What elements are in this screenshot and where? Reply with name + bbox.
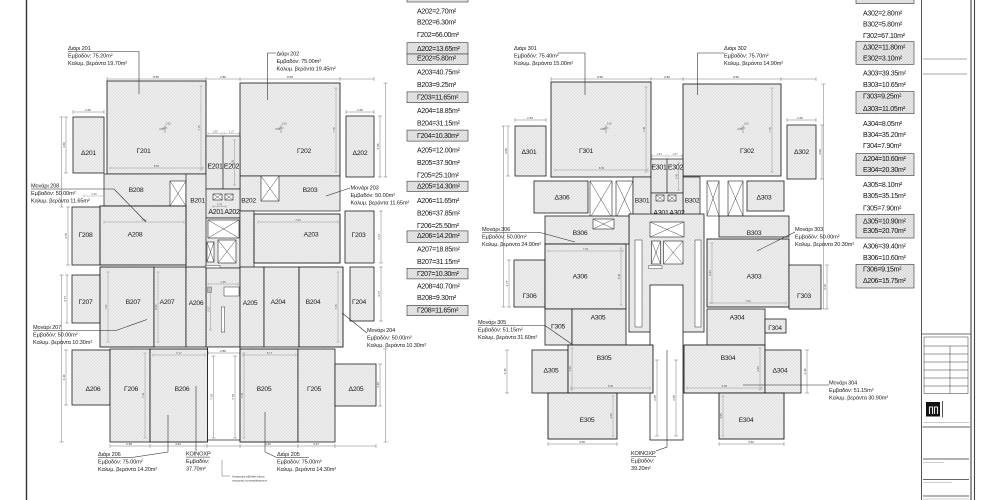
svg-text:2.60: 2.60 bbox=[85, 108, 91, 112]
svg-text:3.45: 3.45 bbox=[653, 395, 657, 401]
svg-text:Γ206: Γ206 bbox=[124, 386, 139, 393]
svg-text:B204=31.15m²: B204=31.15m² bbox=[417, 120, 460, 127]
svg-text:Μονάρι 208: Μονάρι 208 bbox=[31, 183, 59, 190]
svg-text:Δ206=15.75m²: Δ206=15.75m² bbox=[863, 278, 906, 285]
svg-text:B206=37.85m²: B206=37.85m² bbox=[417, 211, 460, 218]
svg-text:A205: A205 bbox=[243, 300, 258, 307]
svg-text:1.55: 1.55 bbox=[212, 130, 218, 134]
svg-text:E302: E302 bbox=[668, 165, 684, 172]
svg-text:4.55: 4.55 bbox=[231, 159, 235, 165]
svg-text:7.37: 7.37 bbox=[104, 304, 108, 310]
svg-text:Γ304: Γ304 bbox=[768, 325, 782, 332]
svg-text:7.02: 7.02 bbox=[583, 247, 589, 251]
svg-text:6.42: 6.42 bbox=[154, 304, 158, 310]
svg-text:Γ202: Γ202 bbox=[297, 148, 312, 155]
svg-text:Γ304=7.90m²: Γ304=7.90m² bbox=[863, 143, 902, 150]
svg-text:Γ303: Γ303 bbox=[797, 293, 812, 300]
svg-text:A201: A201 bbox=[208, 209, 224, 216]
svg-text:0.15: 0.15 bbox=[607, 124, 612, 126]
svg-text:B202=6.30m²: B202=6.30m² bbox=[417, 20, 457, 27]
svg-text:2.60: 2.60 bbox=[527, 116, 533, 120]
svg-text:Γ206=25.50m²: Γ206=25.50m² bbox=[417, 223, 460, 230]
svg-text:A202=2.70m²: A202=2.70m² bbox=[417, 9, 457, 16]
svg-text:Καλυμ. βεράντα 31.60m²: Καλυμ. βεράντα 31.60m² bbox=[478, 334, 537, 341]
svg-text:Εμβαδόν: 50.00m²: Εμβαδόν: 50.00m² bbox=[33, 331, 78, 338]
svg-text:Δ206=14.20m²: Δ206=14.20m² bbox=[417, 233, 460, 240]
svg-text:Εμβαδόν:: Εμβαδόν: bbox=[631, 457, 655, 464]
svg-text:Γ301: Γ301 bbox=[579, 148, 594, 155]
svg-text:B304=35.20m²: B304=35.20m² bbox=[863, 132, 906, 139]
svg-text:Καλυμ. βεράντα 19.70m²: Καλυμ. βεράντα 19.70m² bbox=[68, 60, 127, 67]
svg-text:3.40: 3.40 bbox=[803, 368, 807, 374]
svg-text:2.40: 2.40 bbox=[91, 192, 97, 196]
svg-text:A305: A305 bbox=[591, 315, 606, 322]
svg-text:B301: B301 bbox=[635, 198, 650, 205]
svg-text:Δ303: Δ303 bbox=[757, 195, 772, 202]
svg-text:7.33: 7.33 bbox=[141, 392, 145, 398]
svg-text:ΚΟΙΝΟΧΡ: ΚΟΙΝΟΧΡ bbox=[631, 451, 656, 457]
svg-text:B201: B201 bbox=[190, 198, 205, 205]
svg-text:3.60: 3.60 bbox=[719, 413, 723, 419]
svg-text:Μονάρι 207: Μονάρι 207 bbox=[33, 324, 61, 331]
svg-text:7.25: 7.25 bbox=[334, 304, 338, 310]
svg-text:6.60: 6.60 bbox=[722, 384, 728, 388]
svg-text:Εμβαδόν: 75.00m²: Εμβαδόν: 75.00m² bbox=[98, 458, 143, 465]
svg-text:3.00: 3.00 bbox=[818, 149, 822, 155]
svg-text:Γ204: Γ204 bbox=[352, 299, 367, 306]
svg-text:ΚΟΙΝΟΧΡ: ΚΟΙΝΟΧΡ bbox=[186, 452, 211, 458]
svg-text:3.40: 3.40 bbox=[503, 368, 507, 374]
svg-text:Γ305: Γ305 bbox=[551, 324, 566, 331]
svg-text:A302=2.80m²: A302=2.80m² bbox=[863, 11, 903, 18]
svg-text:Δ201: Δ201 bbox=[81, 150, 96, 157]
svg-text:Διάρι 205: Διάρι 205 bbox=[277, 451, 300, 458]
svg-text:B205: B205 bbox=[257, 386, 272, 393]
svg-text:3.45: 3.45 bbox=[568, 366, 572, 372]
svg-text:A202: A202 bbox=[224, 209, 240, 216]
svg-text:Δ206: Δ206 bbox=[86, 386, 101, 393]
svg-text:Γ203: Γ203 bbox=[351, 232, 366, 239]
svg-text:4.60: 4.60 bbox=[376, 143, 380, 149]
svg-text:E304=20.30m²: E304=20.30m² bbox=[863, 167, 906, 174]
svg-text:4.75: 4.75 bbox=[64, 233, 68, 239]
svg-text:2.60: 2.60 bbox=[357, 108, 363, 112]
svg-text:2.80: 2.80 bbox=[220, 75, 226, 79]
svg-text:Μονάρι 203: Μονάρι 203 bbox=[351, 185, 379, 192]
svg-text:Μονάρι 304: Μονάρι 304 bbox=[829, 380, 857, 387]
svg-text:B207=31.15m²: B207=31.15m² bbox=[417, 259, 460, 266]
svg-text:Διάρι 206: Διάρι 206 bbox=[98, 451, 121, 458]
svg-text:7.70: 7.70 bbox=[240, 392, 244, 398]
svg-text:Μονάρι 204: Μονάρι 204 bbox=[367, 327, 395, 334]
svg-text:Γ203=11.65m²: Γ203=11.65m² bbox=[417, 95, 459, 102]
svg-text:Εμβαδόν: 75.40m²: Εμβαδόν: 75.40m² bbox=[514, 52, 559, 59]
svg-text:Γ202=66.00m²: Γ202=66.00m² bbox=[417, 32, 460, 39]
svg-text:Δ305=10.90m²: Δ305=10.90m² bbox=[863, 219, 906, 226]
svg-text:B203: B203 bbox=[303, 187, 318, 194]
svg-text:Εμβαδόν: 75.20m²: Εμβαδόν: 75.20m² bbox=[68, 52, 113, 59]
svg-text:4.40: 4.40 bbox=[748, 440, 754, 444]
svg-text:Δ306: Δ306 bbox=[555, 195, 570, 202]
svg-text:απομονης προσκαθαιρεσων: απομονης προσκαθαιρεσων bbox=[232, 479, 268, 483]
svg-text:Καλυμ. βεράντα 10.30m²: Καλυμ. βεράντα 10.30m² bbox=[33, 339, 92, 346]
svg-text:Δ305: Δ305 bbox=[544, 368, 559, 375]
svg-text:Γ207: Γ207 bbox=[78, 299, 93, 306]
svg-text:0.60: 0.60 bbox=[738, 129, 743, 131]
svg-text:2.60: 2.60 bbox=[797, 116, 803, 120]
svg-text:A306: A306 bbox=[573, 274, 588, 281]
svg-text:Γ306=9.15m²: Γ306=9.15m² bbox=[863, 267, 902, 274]
svg-text:0.75: 0.75 bbox=[217, 203, 223, 207]
svg-text:Εμβαδόν: 50.00m²: Εμβαδόν: 50.00m² bbox=[31, 190, 76, 197]
svg-text:A208=40.70m²: A208=40.70m² bbox=[417, 284, 460, 291]
svg-text:A305=8.10m²: A305=8.10m² bbox=[863, 182, 903, 189]
svg-text:B207: B207 bbox=[126, 299, 141, 306]
svg-text:5.27: 5.27 bbox=[207, 306, 211, 312]
svg-text:4.40: 4.40 bbox=[376, 382, 380, 388]
svg-text:Εμβαδόν:: Εμβαδόν: bbox=[186, 458, 210, 465]
svg-text:A204=18.85m²: A204=18.85m² bbox=[417, 108, 460, 115]
svg-text:A206=11.65m²: A206=11.65m² bbox=[417, 198, 460, 205]
svg-text:Καλυμ. βεράντα 11.65m²: Καλυμ. βεράντα 11.65m² bbox=[351, 199, 410, 206]
svg-text:A205=12.00m²: A205=12.00m² bbox=[417, 147, 460, 154]
svg-text:A207=18.85m²: A207=18.85m² bbox=[417, 247, 460, 254]
svg-text:Καλυμ. βεράντα 20.30m²: Καλυμ. βεράντα 20.30m² bbox=[795, 241, 854, 248]
svg-text:B208=9.30m²: B208=9.30m² bbox=[417, 295, 457, 302]
svg-text:Διάρι 202: Διάρι 202 bbox=[277, 51, 300, 58]
svg-text:8.50: 8.50 bbox=[153, 75, 159, 79]
svg-text:4.76: 4.76 bbox=[377, 234, 381, 240]
svg-text:B304: B304 bbox=[721, 355, 736, 362]
svg-text:B203=9.25m²: B203=9.25m² bbox=[417, 82, 457, 89]
svg-text:2.45: 2.45 bbox=[675, 173, 679, 179]
svg-text:E305: E305 bbox=[580, 417, 595, 424]
svg-text:A303=39.35m²: A303=39.35m² bbox=[863, 71, 906, 78]
svg-text:0.15: 0.15 bbox=[744, 124, 749, 126]
svg-text:4.60: 4.60 bbox=[62, 142, 66, 148]
svg-text:8.50: 8.50 bbox=[733, 75, 739, 79]
svg-text:E202=5.80m²: E202=5.80m² bbox=[417, 56, 457, 63]
svg-text:A203: A203 bbox=[304, 232, 319, 239]
svg-text:7.76: 7.76 bbox=[332, 127, 336, 133]
svg-text:Καλυμ. βεράντα 11.65m²: Καλυμ. βεράντα 11.65m² bbox=[31, 197, 90, 204]
svg-text:A208: A208 bbox=[128, 232, 143, 239]
svg-text:7.00: 7.00 bbox=[745, 299, 751, 303]
svg-text:3.00: 3.00 bbox=[504, 148, 508, 154]
svg-text:Γ302=67.10m²: Γ302=67.10m² bbox=[863, 33, 906, 40]
svg-text:7.03: 7.03 bbox=[295, 218, 301, 222]
svg-text:Δ202=13.65m²: Δ202=13.65m² bbox=[417, 46, 460, 53]
svg-text:3.60: 3.60 bbox=[609, 413, 613, 419]
svg-text:Εμβαδόν: 51.15m²: Εμβαδόν: 51.15m² bbox=[478, 326, 523, 333]
svg-text:Γ207=10.30m²: Γ207=10.30m² bbox=[417, 271, 460, 278]
svg-text:6.60: 6.60 bbox=[608, 384, 614, 388]
svg-text:Μονάρι 303: Μονάρι 303 bbox=[795, 226, 823, 233]
svg-text:Εμβαδόν: 75.70m²: Εμβαδόν: 75.70m² bbox=[724, 52, 769, 59]
svg-text:Καλυμ. βεράντα 14.90m²: Καλυμ. βεράντα 14.90m² bbox=[724, 60, 783, 67]
svg-text:A207: A207 bbox=[160, 299, 175, 306]
svg-text:E201: E201 bbox=[207, 164, 223, 171]
svg-text:Δ202: Δ202 bbox=[353, 150, 368, 157]
svg-text:Καλυμ. βεράντα 14.30m²: Καλυμ. βεράντα 14.30m² bbox=[277, 466, 336, 473]
svg-text:B204: B204 bbox=[306, 299, 321, 306]
svg-text:Διάρι 302: Διάρι 302 bbox=[724, 45, 747, 52]
svg-text:B303: B303 bbox=[747, 230, 762, 237]
svg-text:Μονάρι 305: Μονάρι 305 bbox=[478, 319, 506, 326]
svg-text:Εμβαδόν: 50.00m²: Εμβαδόν: 50.00m² bbox=[482, 233, 527, 240]
svg-text:Δ303=11.05m²: Δ303=11.05m² bbox=[863, 106, 906, 113]
svg-text:6.44: 6.44 bbox=[708, 270, 712, 276]
svg-text:B306=10.60m²: B306=10.60m² bbox=[863, 255, 906, 262]
svg-text:Γ205: Γ205 bbox=[307, 386, 322, 393]
svg-text:Γ205=25.10m²: Γ205=25.10m² bbox=[417, 173, 460, 180]
svg-text:Εμβαδόν: 50.00m²: Εμβαδόν: 50.00m² bbox=[351, 192, 396, 199]
svg-text:E305=20.70m²: E305=20.70m² bbox=[863, 228, 906, 235]
svg-text:A303: A303 bbox=[747, 274, 762, 281]
svg-text:B303=10.65m²: B303=10.65m² bbox=[863, 82, 906, 89]
svg-text:B305=35.15m²: B305=35.15m² bbox=[863, 193, 906, 200]
svg-text:0.60: 0.60 bbox=[276, 129, 281, 131]
svg-text:Δ302: Δ302 bbox=[794, 149, 809, 156]
svg-text:Γ208=11.65m²: Γ208=11.65m² bbox=[417, 308, 459, 315]
svg-text:Διάρι 201: Διάρι 201 bbox=[68, 45, 91, 52]
svg-text:Εμβαδόν: 50.00m²: Εμβαδόν: 50.00m² bbox=[367, 334, 412, 341]
svg-text:4.77: 4.77 bbox=[377, 291, 381, 297]
svg-text:7.79: 7.79 bbox=[210, 394, 214, 400]
svg-text:5.17: 5.17 bbox=[267, 351, 273, 355]
svg-text:Καλυμ. βεράντα 10.30m²: Καλυμ. βεράντα 10.30m² bbox=[367, 342, 426, 349]
svg-text:37.70m²: 37.70m² bbox=[186, 466, 206, 472]
svg-text:39.20m²: 39.20m² bbox=[631, 466, 651, 472]
svg-text:4.50: 4.50 bbox=[579, 440, 585, 444]
svg-text:Καλυμ. βεράντα 14.20m²: Καλυμ. βεράντα 14.20m² bbox=[98, 466, 157, 473]
svg-text:Διάρι 301: Διάρι 301 bbox=[514, 45, 537, 52]
svg-text:Δ302=11.80m²: Δ302=11.80m² bbox=[863, 45, 906, 52]
svg-text:3.45: 3.45 bbox=[672, 395, 676, 401]
svg-text:A204: A204 bbox=[271, 299, 286, 306]
svg-text:6.40: 6.40 bbox=[617, 273, 621, 279]
svg-text:Δ204=10.60m²: Δ204=10.60m² bbox=[863, 156, 906, 163]
svg-text:Γ302: Γ302 bbox=[740, 148, 755, 155]
svg-text:A304=8.05m²: A304=8.05m² bbox=[863, 121, 903, 128]
svg-text:8.50: 8.50 bbox=[154, 164, 160, 168]
svg-text:0.60: 0.60 bbox=[160, 129, 165, 131]
svg-text:Δ304: Δ304 bbox=[773, 368, 788, 375]
svg-text:A206: A206 bbox=[189, 300, 204, 307]
svg-text:B302: B302 bbox=[685, 198, 700, 205]
svg-text:Εμβαδόν: 75.00m²: Εμβαδόν: 75.00m² bbox=[277, 458, 322, 465]
svg-text:0.15: 0.15 bbox=[282, 124, 287, 126]
svg-text:Γ303=9.25m²: Γ303=9.25m² bbox=[863, 93, 902, 100]
svg-text:5.17: 5.17 bbox=[176, 351, 182, 355]
svg-text:A306=39.40m²: A306=39.40m² bbox=[863, 244, 906, 251]
svg-text:A203=40.75m²: A203=40.75m² bbox=[417, 69, 460, 76]
svg-text:Γ305=7.90m²: Γ305=7.90m² bbox=[863, 205, 902, 212]
svg-text:E302=3.10m²: E302=3.10m² bbox=[863, 55, 903, 62]
svg-text:E304: E304 bbox=[739, 417, 754, 424]
svg-text:B305: B305 bbox=[597, 355, 612, 362]
svg-text:Καλυμ. βεράντα 15.00m²: Καλυμ. βεράντα 15.00m² bbox=[514, 60, 573, 67]
svg-text:3.45: 3.45 bbox=[756, 366, 760, 372]
svg-text:4.77: 4.77 bbox=[505, 280, 509, 286]
svg-text:E301: E301 bbox=[651, 165, 667, 172]
svg-text:B208: B208 bbox=[129, 187, 144, 194]
svg-text:B306: B306 bbox=[573, 230, 588, 237]
svg-text:4.77: 4.77 bbox=[63, 296, 67, 302]
svg-text:Καλυμ. βεράντα 30.90m²: Καλυμ. βεράντα 30.90m² bbox=[829, 394, 888, 401]
svg-text:1.33: 1.33 bbox=[656, 152, 662, 156]
svg-text:Δ205=14.30m²: Δ205=14.30m² bbox=[417, 183, 460, 190]
svg-text:Γ306: Γ306 bbox=[522, 293, 537, 300]
svg-text:Καλυμ. βεράντα 24.90m²: Καλυμ. βεράντα 24.90m² bbox=[482, 241, 541, 248]
svg-text:Εμβαδόν: 75.00m²: Εμβαδόν: 75.00m² bbox=[277, 58, 322, 65]
svg-text:Γ201: Γ201 bbox=[136, 148, 151, 155]
svg-text:B302=5.80m²: B302=5.80m² bbox=[863, 22, 903, 29]
svg-text:B206: B206 bbox=[175, 386, 190, 393]
svg-text:1.27: 1.27 bbox=[672, 152, 678, 156]
svg-text:1.27: 1.27 bbox=[229, 130, 235, 134]
svg-text:7.70: 7.70 bbox=[231, 394, 235, 400]
svg-text:Μονάρι 306: Μονάρι 306 bbox=[482, 226, 510, 233]
svg-text:Δ301: Δ301 bbox=[522, 149, 537, 156]
svg-text:8.50: 8.50 bbox=[287, 75, 293, 79]
svg-text:Γ204=10.30m²: Γ204=10.30m² bbox=[417, 133, 460, 140]
svg-text:Εμβαδόν: 51.15m²: Εμβαδόν: 51.15m² bbox=[829, 387, 874, 394]
svg-text:B202: B202 bbox=[241, 198, 256, 205]
svg-text:Καλυμ. βεράντα 19.45m²: Καλυμ. βεράντα 19.45m² bbox=[277, 65, 336, 72]
svg-text:0.15: 0.15 bbox=[166, 124, 171, 126]
svg-text:8.50: 8.50 bbox=[597, 75, 603, 79]
svg-text:B205=37.90m²: B205=37.90m² bbox=[417, 160, 460, 167]
svg-text:Γ208: Γ208 bbox=[78, 232, 93, 239]
svg-text:1.35: 1.35 bbox=[220, 280, 226, 284]
svg-text:0.60: 0.60 bbox=[601, 129, 606, 131]
svg-text:7.76: 7.76 bbox=[197, 125, 201, 131]
svg-text:Δ205: Δ205 bbox=[349, 386, 364, 393]
svg-text:A304: A304 bbox=[730, 315, 745, 322]
svg-text:2.80: 2.80 bbox=[664, 75, 670, 79]
svg-text:Εμβαδόν: 50.00m²: Εμβαδόν: 50.00m² bbox=[795, 233, 840, 240]
svg-text:8.50: 8.50 bbox=[599, 166, 605, 170]
svg-text:7.76: 7.76 bbox=[768, 127, 772, 133]
svg-text:2.80: 2.80 bbox=[220, 349, 226, 353]
svg-text:4.40: 4.40 bbox=[62, 374, 66, 380]
svg-text:7.46: 7.46 bbox=[642, 126, 646, 132]
